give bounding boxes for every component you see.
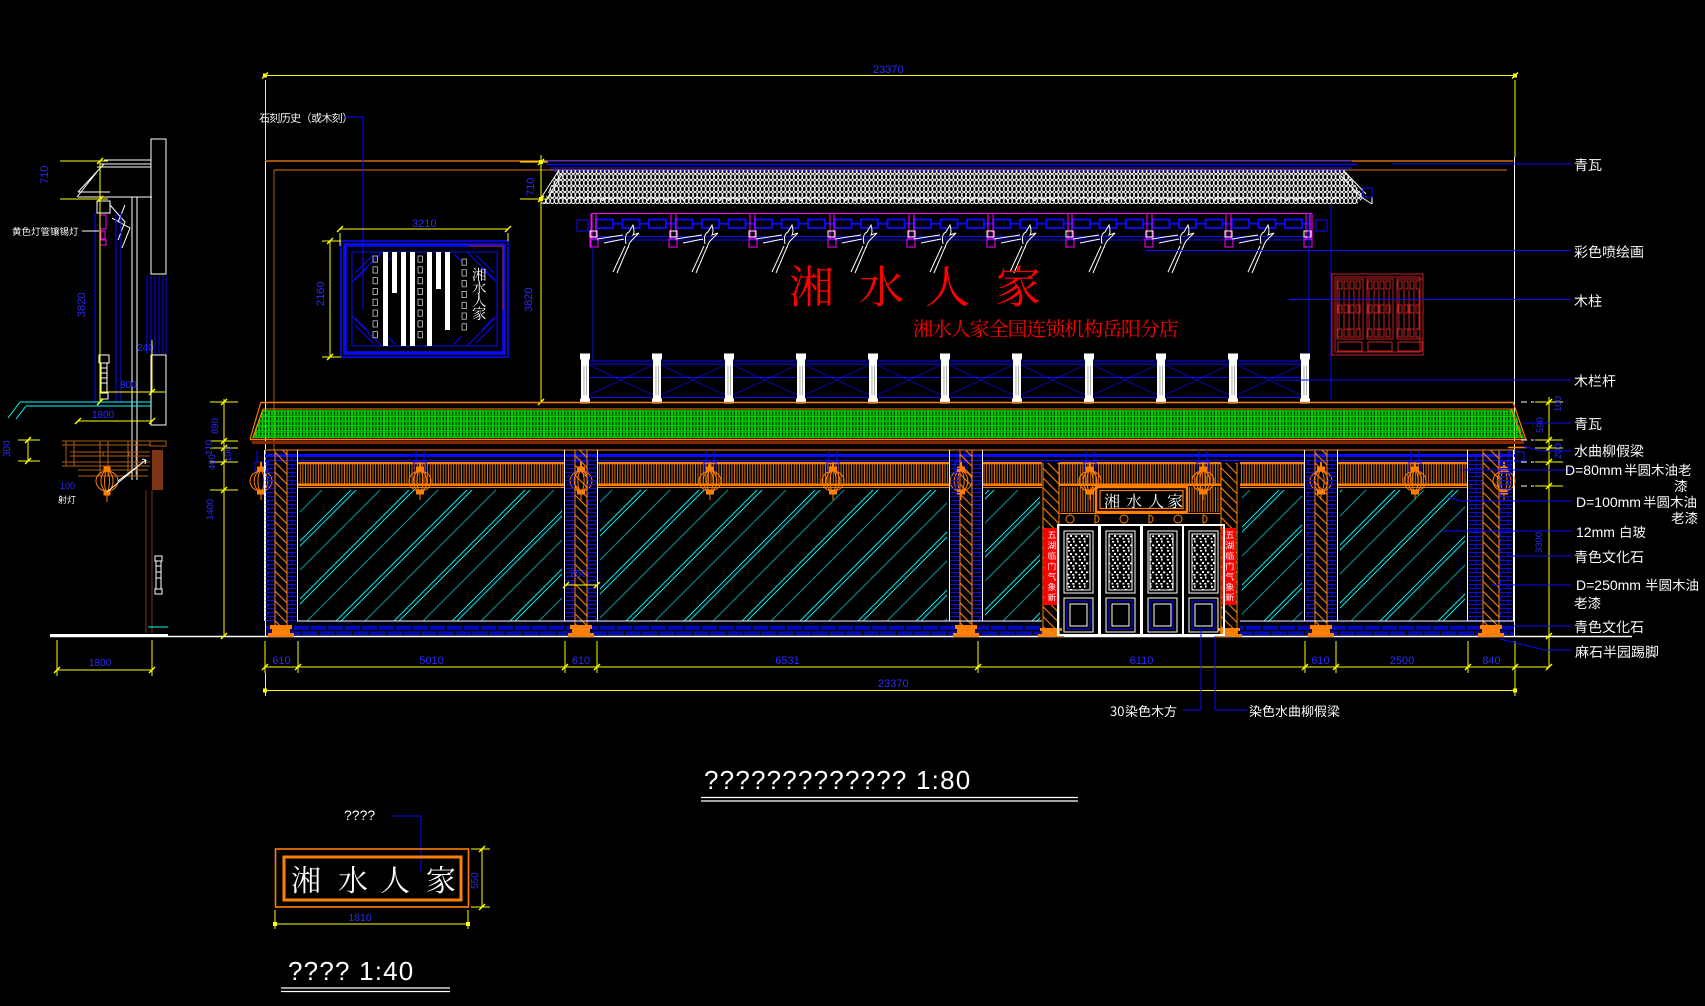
svg-text:100: 100	[223, 446, 234, 462]
svg-text:710: 710	[39, 166, 51, 184]
svg-text:1810: 1810	[348, 912, 372, 924]
svg-text:100: 100	[1553, 396, 1564, 412]
svg-text:6531: 6531	[775, 655, 799, 667]
svg-text:610: 610	[1311, 655, 1329, 667]
svg-text:610: 610	[572, 655, 590, 667]
svg-text:890: 890	[210, 418, 221, 434]
svg-text:610: 610	[272, 655, 290, 667]
svg-text:1800: 1800	[89, 658, 112, 669]
svg-text:3820: 3820	[76, 293, 88, 317]
svg-text:???? 1:40: ???? 1:40	[288, 956, 414, 986]
svg-text:3210: 3210	[412, 218, 436, 230]
svg-text:3300: 3300	[1534, 532, 1545, 553]
svg-text:100: 100	[60, 481, 75, 491]
svg-text:D=80mm: D=80mm	[1565, 462, 1622, 478]
svg-text:2500: 2500	[1390, 655, 1414, 667]
svg-text:2160: 2160	[315, 282, 327, 306]
svg-text:12mm: 12mm	[1576, 524, 1615, 540]
svg-text:23370: 23370	[873, 64, 904, 76]
svg-text:840: 840	[1482, 655, 1500, 667]
svg-text:550: 550	[470, 872, 481, 889]
svg-text:1400: 1400	[205, 499, 216, 520]
svg-text:300: 300	[2, 440, 13, 457]
svg-text:D=100mm: D=100mm	[1576, 494, 1641, 510]
svg-text:5010: 5010	[419, 655, 443, 667]
svg-text:23370: 23370	[878, 678, 909, 690]
svg-text:D=250mm: D=250mm	[1576, 577, 1641, 593]
svg-text:250: 250	[570, 569, 587, 580]
svg-text:????????????? 1:80: ????????????? 1:80	[704, 765, 971, 795]
svg-text:3820: 3820	[523, 288, 535, 312]
svg-text:110: 110	[204, 440, 215, 455]
svg-text:800: 800	[120, 380, 137, 391]
svg-text:1800: 1800	[92, 410, 115, 421]
svg-text:????: ????	[344, 807, 375, 823]
svg-text:590: 590	[1535, 417, 1546, 433]
svg-text:400: 400	[207, 454, 218, 470]
svg-text:6110: 6110	[1130, 655, 1154, 667]
svg-text:710: 710	[525, 178, 537, 196]
